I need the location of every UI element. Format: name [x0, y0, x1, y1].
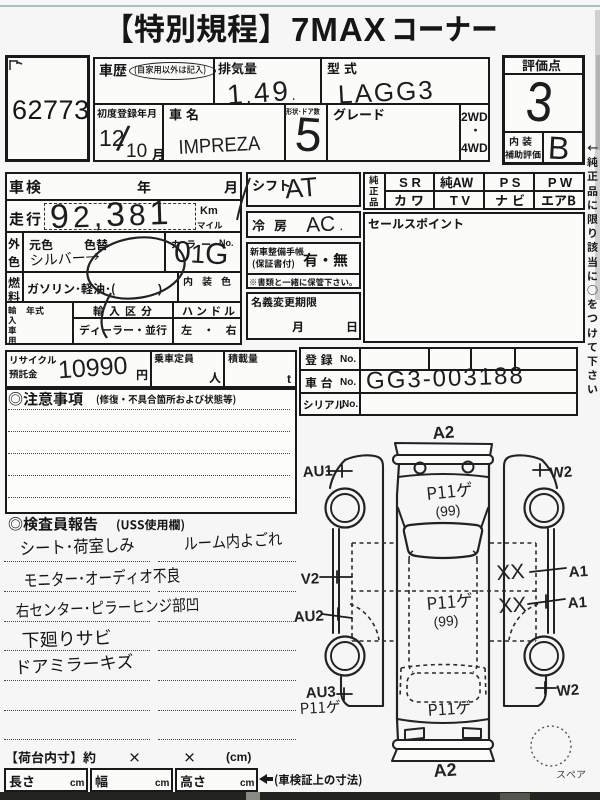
svg-text:A1: A1: [568, 563, 588, 581]
svg-text:XX: XX: [498, 593, 528, 618]
svg-text:(99): (99): [435, 501, 461, 520]
svg-text:A2: A2: [433, 759, 457, 781]
svg-text:AU3: AU3: [305, 683, 336, 702]
svg-text:XX: XX: [496, 560, 526, 585]
svg-text:W2: W2: [549, 463, 573, 482]
svg-text:V2: V2: [301, 570, 320, 588]
svg-text:A2: A2: [432, 423, 455, 443]
svg-text:W2: W2: [556, 681, 580, 700]
svg-text:A1: A1: [567, 594, 587, 612]
svg-text:AU1: AU1: [302, 462, 333, 481]
svg-text:AU2: AU2: [293, 607, 324, 626]
svg-text:(99): (99): [433, 612, 459, 630]
